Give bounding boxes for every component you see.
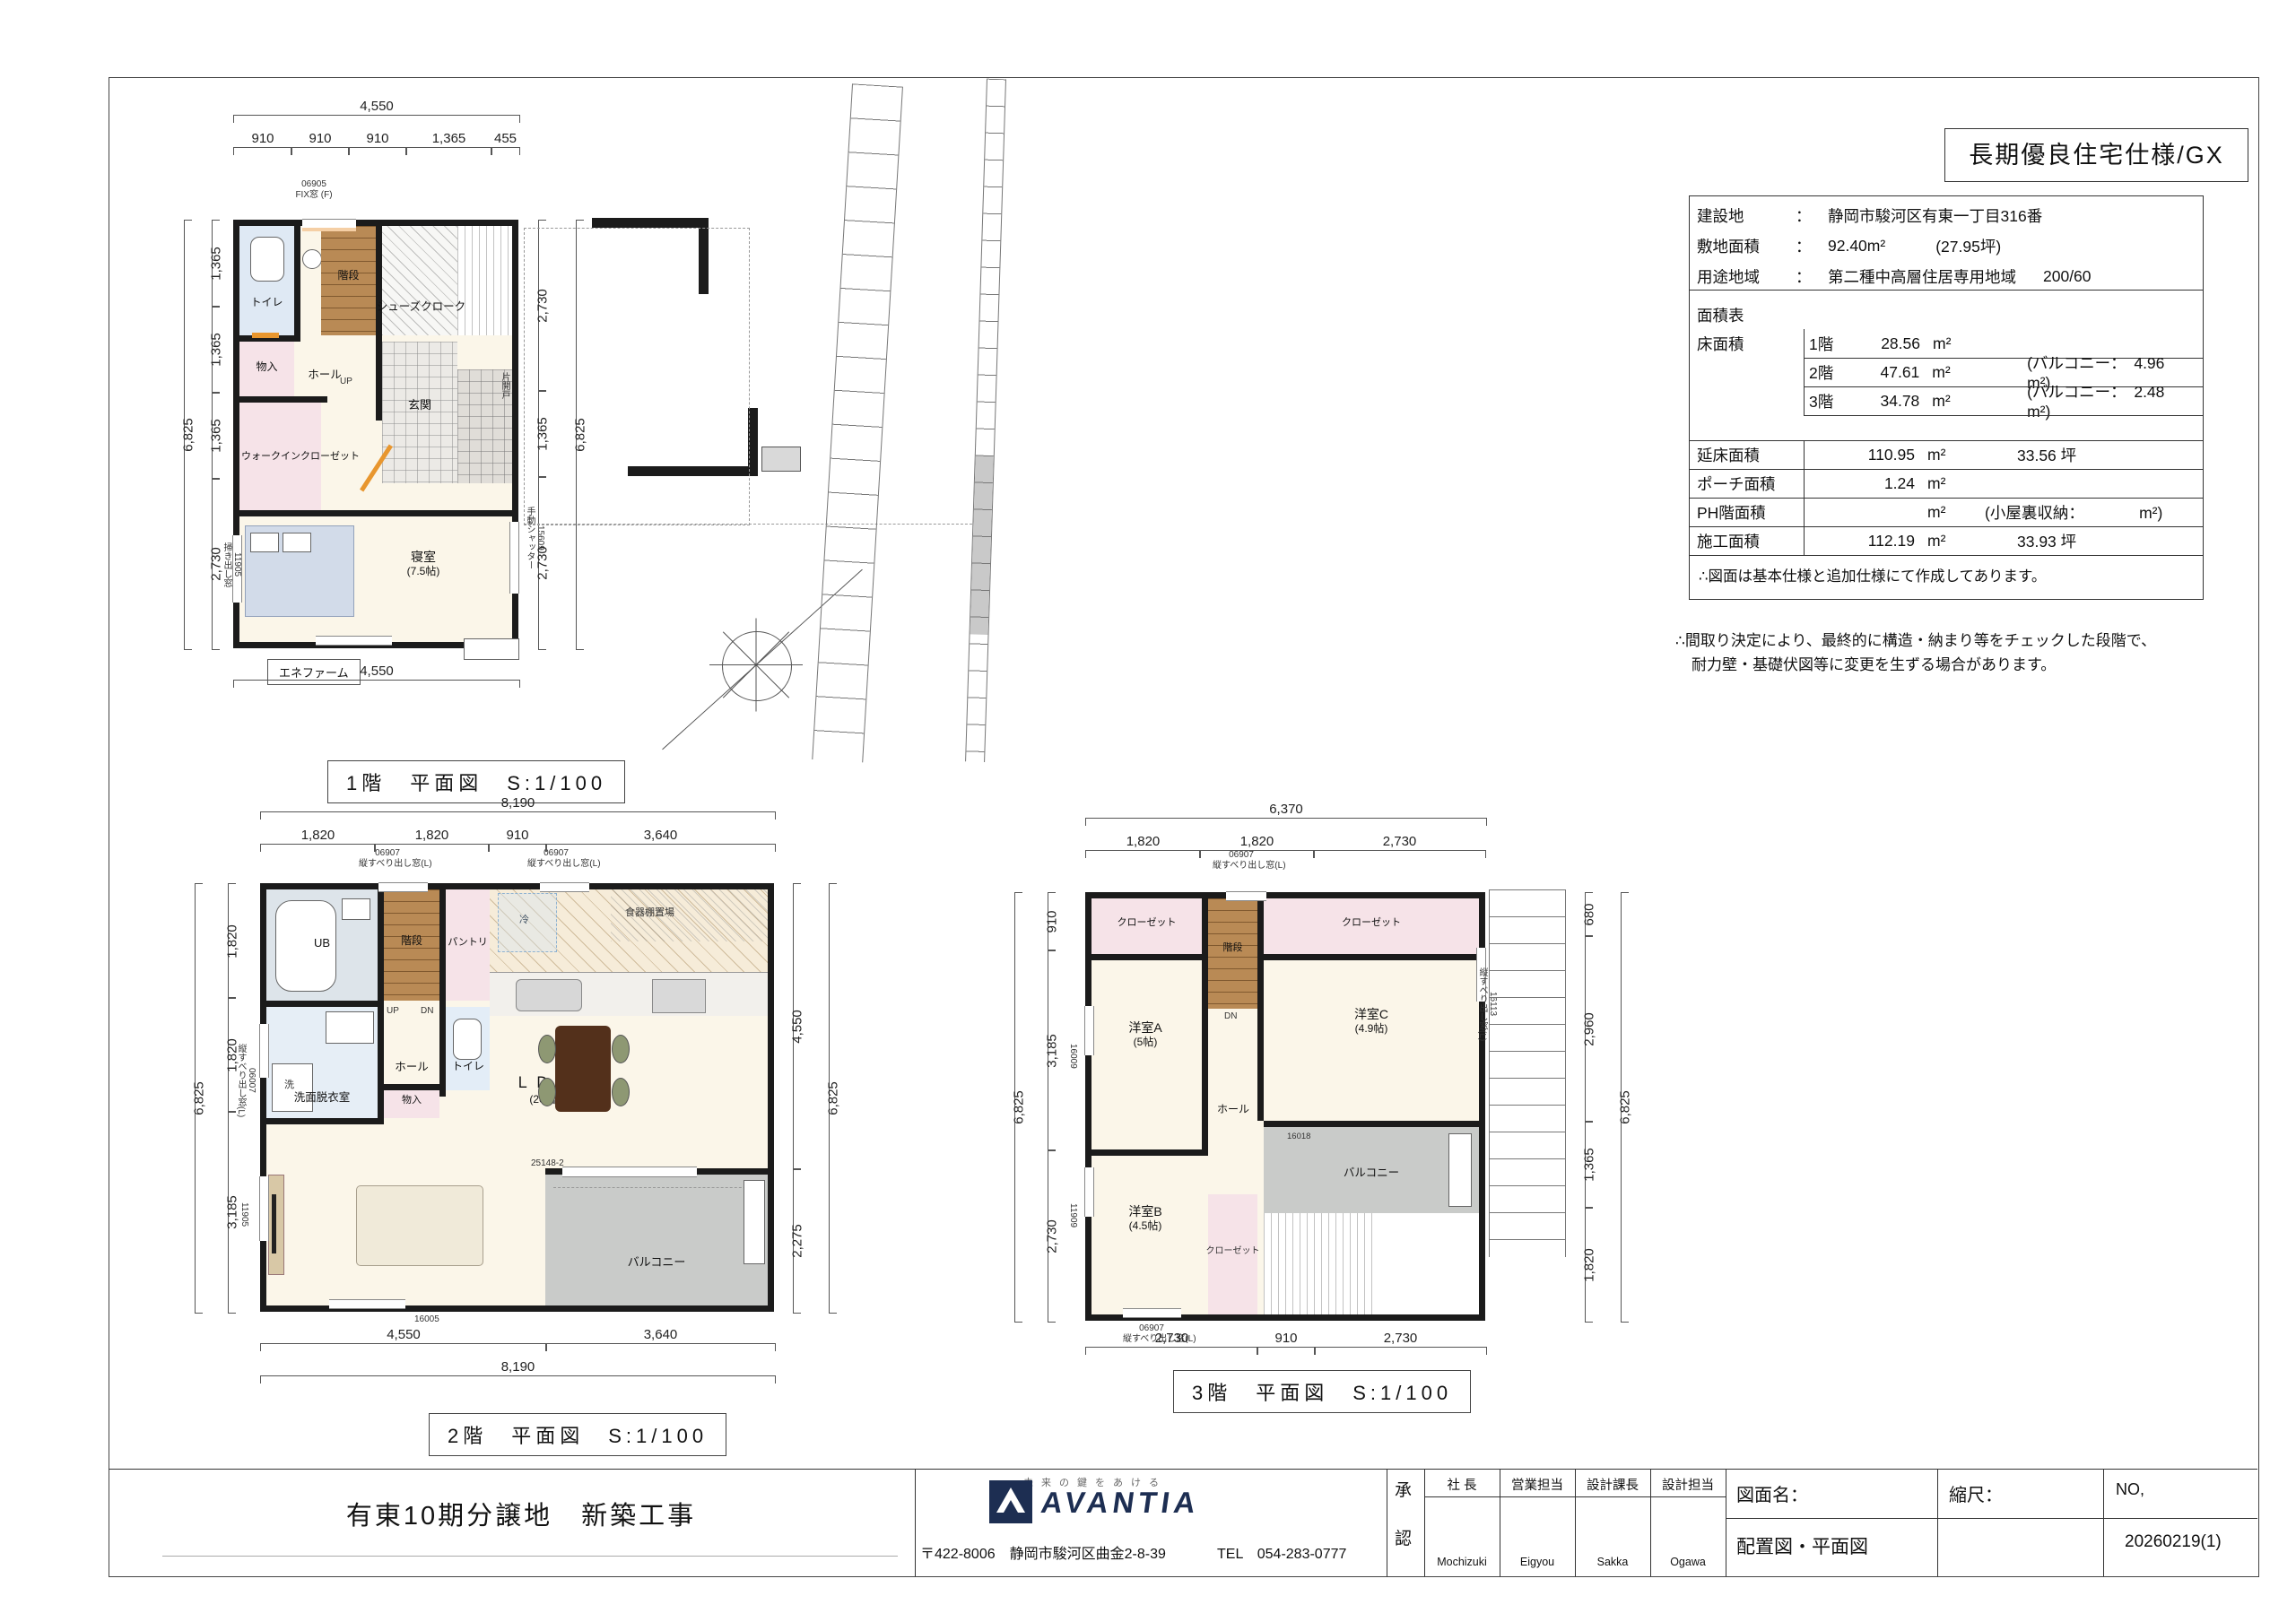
roomB-name: 洋室B [1114,1203,1177,1219]
dim-line: 1,365 [212,220,220,308]
window-tag: 11909 [1067,1189,1078,1243]
divider [1804,415,2203,416]
window [1226,891,1266,901]
washbasin [302,249,322,269]
wall [294,226,300,335]
door-tag: 片開戸 [499,359,509,412]
dim-label: 1,820 [225,924,240,958]
room-label-balcony: バルコニー [603,1255,710,1271]
dim-label: 1,820 [261,828,375,843]
approver-name: Eigyou [1500,1556,1575,1568]
dim-label: 910 [234,131,291,146]
floor-name: 1階 [1804,333,1856,355]
floor-value: 47.61 [1856,363,1920,382]
dim-label: 4,550 [261,1327,546,1342]
dim-line: 1,820 [260,844,376,852]
room-label-closet: クローゼット [1318,916,1425,929]
total-row: 施工面積 112.19 m² 33.93 坪 [1690,526,2203,555]
scale-label: 縮尺： [1949,1480,2003,1506]
dim-line: 2,275 [793,1168,801,1314]
dim-label: 6,825 [1618,1090,1633,1124]
divider [1726,1518,2257,1519]
dim-label: 2,730 [1315,1331,1486,1346]
dim-label: 1,820 [1582,1248,1597,1282]
site-value: 静岡市駿河区有東一丁目316番 [1828,204,2042,227]
window [1084,1006,1094,1055]
dim-label: 1,365 [406,131,491,146]
dim-line: 6,825 [184,220,192,650]
dim-label: 8,190 [261,795,775,811]
window-code: 11905 [231,525,242,605]
company-address: 〒422-8006 静岡市駿河区曲金2-8-39 [920,1541,1166,1563]
dim-line: 6,825 [195,883,203,1314]
vanity [326,1011,374,1044]
dim-label: 3,640 [546,1327,775,1342]
dim-label: 6,825 [1012,1090,1027,1124]
window-code: 06905 [285,179,343,190]
stairs-up-label: UP [387,1006,399,1017]
dim-line: 680 [1585,892,1593,937]
window-sill [302,228,356,231]
wall [239,510,512,516]
stairs-dn-label: DN [421,1006,433,1017]
kitchen-sink [516,979,582,1011]
dim-line: 910 [1257,1347,1316,1355]
dim-line: 910 [291,147,350,155]
fridge-label: 冷 [519,915,529,926]
dim-label: 1,820 [375,828,489,843]
window-type: 縦すべり出し窓(L) [1476,955,1487,1054]
site-extra: 200/60 [2043,267,2092,286]
drawing-sheet: 長期優良住宅仕様/GX 建設地 ： 静岡市駿河区有東一丁目316番 敷地面積 ：… [0,0,2296,1622]
site-row: 敷地面積 ： 92.40m² (27.95坪) [1690,232,2203,259]
room-label-storage: 物入 [239,360,294,375]
dim-line: 6,825 [1621,892,1629,1323]
dining-chair [538,1078,556,1106]
window-code: 06007 [246,1036,257,1125]
divider [1424,1496,1726,1497]
dim-label: 4,550 [790,1010,805,1044]
project-title: 有東10期分譲地 新築工事 [162,1495,880,1532]
spec-badge: 長期優良住宅仕様/GX [1944,128,2248,182]
total-unit: m² [1927,503,1958,522]
floor-name: 2階 [1804,361,1856,384]
window [1123,1308,1181,1318]
dim-label: 910 [291,131,349,146]
room-label-stairs: 階段 [384,934,439,949]
roomC-name: 洋室C [1326,1006,1416,1022]
bedroom-size: (7.5帖) [365,565,482,579]
dim-label: 4,550 [234,664,519,679]
sofa [356,1185,483,1266]
total-note: (小屋裏収納： m²) [1985,501,2162,524]
window-tag: 25148-2 [531,1158,564,1169]
dim-label: 910 [349,131,406,146]
site-label: 用途地域 [1690,265,1796,288]
dim-label: 910 [489,828,546,843]
roomC-size: (4.9帖) [1326,1022,1416,1037]
wall [1257,898,1264,1009]
dim-label: 1,820 [1200,834,1314,849]
dim-line: 455 [491,147,520,155]
balcony-equipment [744,1180,765,1264]
area-table-title: 面積表 [1697,304,1744,326]
dim-line: 2,730 [1313,850,1486,858]
sheet-name-label: 図面名： [1736,1480,1808,1506]
dim-line: 8,190 [260,811,776,820]
dining-table [555,1026,611,1112]
dim-line: 2,730 [1048,1149,1056,1323]
dim-label: 1,365 [209,247,224,281]
window-type: FIX窓 (F) [285,190,343,201]
site-label: 建設地 [1690,204,1796,227]
window [1084,1167,1094,1217]
window-tag: 06905 FIX窓 (F) [285,179,343,201]
window [378,882,428,892]
tv [272,1194,276,1253]
total-label: 延床面積 [1690,444,1816,466]
floor-value: 28.56 [1856,334,1920,353]
sheet-name-value: 配置図・平面図 [1736,1532,1868,1559]
dim-label: 6,825 [181,418,196,452]
dim-label: 8,190 [261,1359,775,1375]
window [259,1176,269,1241]
exterior-void [1373,1213,1479,1314]
divider [1690,290,2203,291]
dim-line: 3,185 [228,1111,236,1314]
drawing-no-label: NO, [2116,1480,2144,1499]
colon: ： [1796,204,1828,227]
floor-unit: m² [1933,334,1963,353]
divider [1387,1470,1387,1576]
site-extra: (27.95坪) [1935,235,2001,257]
room-label-hall: ホール [1206,1103,1260,1117]
floor-name: 3階 [1804,390,1856,412]
wall [1091,954,1202,960]
balcony-dashed-line [553,1187,760,1188]
dim-line: 3,640 [545,844,776,852]
dim-label: 3,185 [225,1195,240,1229]
dim-label: 4,550 [234,99,519,114]
dim-line: 2,960 [1585,935,1593,1123]
bedroom-name: 寝室 [365,549,482,565]
dining-chair [612,1035,630,1063]
site-value: 第二種中高層住居専用地域 [1828,265,2016,288]
wall [239,396,327,403]
room-label-pantry: パントリ [446,936,490,949]
toilet-fixture [453,1019,482,1060]
dim-label: 3,640 [546,828,775,843]
room-shoes-cloak [382,226,457,335]
entry-closet [457,226,512,335]
total-note: 33.93 坪 [2017,530,2076,552]
dim-line: 1,820 [228,997,236,1113]
dim-line: 3,640 [545,1343,776,1351]
floor-unit: m² [1932,363,1962,382]
dim-line: 4,550 [793,883,801,1170]
window-tag: 16005 [414,1314,439,1325]
room-label-closet: クローゼット [1186,1246,1280,1257]
dim-label: 2,730 [209,547,224,581]
room-label-wic: ウォークインクローゼット [241,450,327,463]
dim-label: 2,275 [790,1224,805,1258]
wall [1264,1121,1479,1127]
total-value: 1.24 [1816,474,1915,493]
dim-line: 3,185 [1048,950,1056,1151]
dim-line: 1,820 [374,844,490,852]
room-label-entrance: 玄関 [390,398,449,413]
room-label-roomA: 洋室A (5帖) [1114,1019,1177,1050]
site-value: 92.40m² [1828,237,1885,256]
dim-line: 8,190 [260,1375,776,1383]
dim-line: 6,825 [1014,892,1022,1323]
balcony [545,1175,768,1305]
dim-label: 2,730 [1045,1219,1060,1253]
total-unit: m² [1927,474,1958,493]
floor-value: 34.78 [1856,392,1920,411]
dim-label: 6,825 [826,1081,841,1115]
role-header: 設計担当 [1650,1475,1726,1494]
room-label-shoes-cloak: シューズクローク [343,299,500,314]
dim-label: 910 [1257,1331,1315,1346]
dim-line: 910 [1048,892,1056,951]
total-row: PH階面積 m² (小屋裏収納： m²) [1690,498,2203,526]
dim-line: 1,820 [1085,850,1201,858]
remark-line-1: ∴間取り決定により、最終的に構造・納まり等をチェックした段階で、 [1675,628,2156,650]
room-label-roomB: 洋室B (4.5帖) [1114,1203,1177,1234]
room-label-stairs: 階段 [1208,941,1257,954]
dim-line: 2,730 [212,478,220,650]
wall [378,1001,384,1118]
pillow [250,533,279,552]
total-label: 施工面積 [1690,530,1816,552]
window [540,882,589,892]
floor-area-label: 床面積 [1697,333,1744,355]
role-header: 設計課長 [1575,1475,1650,1494]
roof-below [1264,1213,1373,1314]
dim-line: 1,365 [212,306,220,394]
stairs-dn-label: DN [1224,1011,1237,1022]
window [329,1299,405,1309]
caption-3f: 3階 平面図 S:1/100 [1173,1370,1471,1413]
dim-line: 1,365 [212,392,220,480]
pillow [283,533,311,552]
divider [1690,555,2203,556]
cooktop [652,979,706,1013]
area-table: 建設地 ： 静岡市駿河区有東一丁目316番 敷地面積 ： 92.40m² (27… [1689,195,2204,600]
room-label-toilet: トイレ [442,1060,494,1074]
dim-label: 1,365 [209,333,224,367]
dim-label: 1,365 [1582,1148,1597,1182]
dim-label: 3,185 [1045,1034,1060,1068]
divider [2103,1470,2104,1576]
wall [439,889,446,1001]
role-header: 営業担当 [1500,1475,1575,1494]
dim-label: 680 [1582,903,1597,925]
dim-line: 1,820 [1199,850,1315,858]
window-tag: 11905 掃き出し窓 [221,525,242,605]
room-label-balcony: バルコニー [1318,1166,1425,1180]
dim-line: 2,730 [1085,1347,1258,1355]
sliding-window [562,1167,697,1177]
dim-line: 4,550 [260,1343,547,1351]
wall [384,1084,439,1090]
total-label: ポーチ面積 [1690,473,1816,495]
project-underline [162,1556,898,1557]
caption-2f: 2階 平面図 S:1/100 [429,1413,726,1456]
role-header: 社 長 [1424,1475,1500,1494]
roomB-size: (4.5帖) [1114,1219,1177,1234]
room-label-closet: クローゼット [1091,916,1202,929]
site-boundary-strip [1489,889,1566,1257]
dim-line: 6,370 [1085,818,1487,826]
dim-label: 1,820 [1086,834,1200,849]
total-value: 110.95 [1816,446,1915,464]
room-label-roomC: 洋室C (4.9帖) [1326,1006,1416,1037]
total-row: ポーチ面積 1.24 m² [1690,469,2203,498]
site-wall [592,218,709,228]
toilet-door [252,333,279,338]
site-row: 用途地域 ： 第二種中高層住居専用地域 200/60 [1690,263,2203,290]
dim-label: 2,730 [1086,1331,1257,1346]
floor-plan-3f: クローゼット 階段 クローゼット 洋室A (5帖) DN ホール 洋室C (4.… [1085,892,1485,1321]
roomA-size: (5帖) [1114,1036,1177,1050]
dim-line: 1,820 [228,883,236,999]
dim-line: 6,825 [829,883,837,1314]
wall [378,889,384,1001]
room-label-stairs: 階段 [321,269,376,283]
floor-plan-1f: トイレ 階段 シューズクローク 物入 ホール UP 玄関 ウォークインクローゼッ… [233,220,518,648]
window-tag: 16018 [1287,1132,1310,1141]
wall [266,1118,384,1124]
site-dashed-line [524,524,981,525]
total-unit: m² [1927,446,1958,464]
wall [376,226,382,335]
tv-board [268,1175,284,1275]
dim-label: 910 [1045,910,1060,932]
company-logo-mark [989,1480,1032,1523]
roomA-name: 洋室A [1114,1019,1177,1036]
room-label-ub: UB [293,936,351,951]
logo-mark-inner [1004,1500,1018,1513]
wall [1264,954,1479,960]
dim-line: 910 [233,147,292,155]
room-label-hall: ホール [384,1060,439,1074]
balcony-equipment [464,638,519,660]
floor-plan-2f: UB 階段 パントリ 食器棚置場 冷 トイレ UP DN ホール 洗 洗面脱衣室… [260,883,774,1312]
divider [1726,1470,1726,1576]
dim-label: 2,730 [535,546,551,580]
approver-name: Sakka [1575,1556,1650,1568]
dim-line: 910 [348,147,407,155]
dim-line: 1,365 [405,147,492,155]
title-block: 有東10期分譲地 新築工事 未来の鍵をあける AVANTIA 〒422-8006… [109,1469,2257,1576]
toilet-fixture [250,237,284,282]
dim-line: 2,730 [1314,1347,1487,1355]
wall [266,1001,378,1007]
room-label-bedroom: 寝室 (7.5帖) [365,549,482,579]
dim-line: 4,550 [233,115,520,123]
stairs-up-label: UP [340,377,352,387]
room-label-washroom: 洗面脱衣室 [266,1090,378,1105]
divider [1937,1470,1938,1576]
dim-line: 4,550 [233,680,520,688]
dim-label: 1,820 [225,1038,240,1072]
total-value: 112.19 [1816,532,1915,551]
colon: ： [1796,235,1828,257]
total-row: 延床面積 110.95 m² 33.56 坪 [1690,440,2203,469]
room-label-storage: 物入 [384,1094,439,1106]
site-row: 建設地 ： 静岡市駿河区有東一丁目316番 [1690,202,2203,229]
dim-label: 2,730 [1314,834,1485,849]
dim-line: 1,820 [1585,1207,1593,1323]
company-logo-text: AVANTIA [1039,1486,1202,1520]
balcony-equipment [1448,1133,1472,1207]
total-unit: m² [1927,532,1958,551]
dim-label: 455 [491,131,519,146]
cupboard-label: 食器棚置場 [625,907,674,919]
approval-char-2: 認 [1395,1525,1412,1549]
dim-label: 1,365 [209,419,224,453]
window-tag: 11905 [239,1188,249,1242]
dim-line: 910 [488,844,547,852]
floor-unit: m² [1932,392,1962,411]
total-note: 33.56 坪 [2017,444,2076,466]
colon: ： [1796,265,1828,288]
dim-line: 1,365 [1585,1121,1593,1209]
window-type: 縦すべり出し窓(L) [1213,861,1270,872]
dim-label: 6,370 [1086,802,1486,817]
water-heater [761,447,801,472]
window-tag: 16009 [1067,1029,1078,1083]
window-type: 縦すべり出し窓(L) [527,859,585,870]
approver-name: Mochizuki [1424,1556,1500,1568]
dim-label: 2,960 [1582,1012,1597,1046]
window [316,636,392,646]
approval-char-1: 承 [1395,1477,1412,1501]
drawing-no-value: 20260219(1) [2125,1532,2222,1552]
wall [376,335,382,421]
total-label: PH階面積 [1690,501,1816,524]
dim-label: 6,825 [192,1081,207,1115]
room-label-toilet: トイレ [239,296,294,310]
floor-row: 3階 34.78 m² (バルコニー： 2.48 m²) [1804,386,2203,415]
remark-line-2: 耐力壁・基礎伏図等に変更を生ずる場合があります。 [1692,652,2056,674]
window [259,1024,269,1078]
bath-counter [342,898,370,920]
shutter-window [509,522,519,594]
dining-chair [612,1078,630,1106]
approver-name: Ogawa [1650,1556,1726,1568]
wall [1202,898,1208,1009]
carport-boundary [524,228,750,525]
divider [915,1470,916,1576]
wall [1202,1009,1208,1156]
window-type: 縦すべり出し窓(L) [359,859,416,870]
wall [1091,1149,1202,1156]
site-label: 敷地面積 [1690,235,1796,257]
table-footnote: ∴図面は基本仕様と追加仕様にて作成してあります。 [1699,564,2046,585]
dining-chair [538,1035,556,1063]
wall [439,1001,446,1097]
company-tel: TEL 054-283-0777 [1217,1541,1346,1563]
